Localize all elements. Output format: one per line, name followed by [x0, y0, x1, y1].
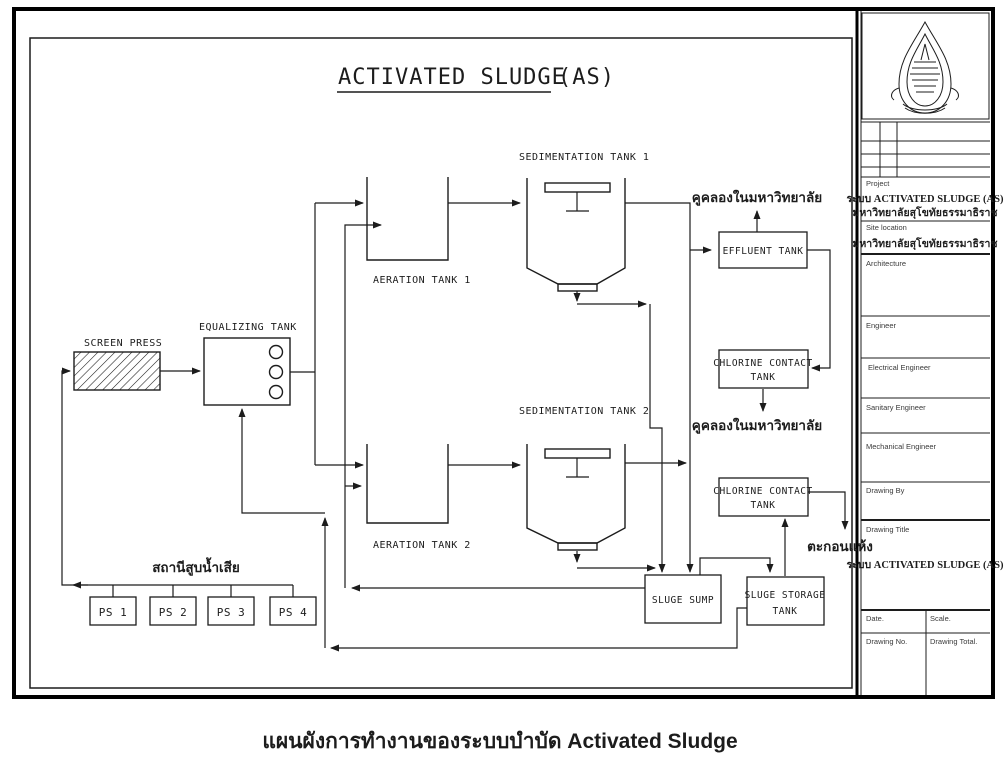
- diagram-title: ACTIVATED SLUDGE (AS): [337, 65, 615, 92]
- drawing-no-label: Drawing No.: [866, 637, 907, 646]
- drawing-by-label: Drawing By: [866, 486, 905, 495]
- pump-station-group-label: สถานีสูบน้ำเสีย: [152, 557, 240, 576]
- sheet-border: [14, 9, 993, 697]
- chlorine-contact-tank-1-label: CHLORINE CONTACT: [713, 358, 813, 369]
- process-flow-diagram: ACTIVATED SLUDGE (AS): [0, 0, 1006, 765]
- date-label: Date.: [866, 614, 884, 623]
- electrical-engineer-label: Electrical Engineer: [868, 363, 931, 372]
- page-caption: แผนผังการทำงานของระบบบำบัด Activated Slu…: [262, 730, 737, 753]
- canal-annotation-top: คูคลองในมหาวิทยาลัย: [692, 189, 822, 206]
- sedimentation-tank-1-label: SEDIMENTATION TANK 1: [519, 152, 649, 163]
- sludge-sump: SLUGE SUMP: [645, 575, 721, 623]
- sludge-storage-tank-body: [747, 577, 824, 625]
- drawing-title-value: ระบบ ACTIVATED SLUDGE (AS): [847, 560, 1004, 571]
- engineer-label: Engineer: [866, 321, 897, 330]
- sedimentation-tank-2-label: SEDIMENTATION TANK 2: [519, 406, 649, 417]
- architecture-label: Architecture: [866, 259, 906, 268]
- diagram-title-suffix: (AS): [558, 65, 615, 90]
- chlorine-contact-tank-2: CHLORINE CONTACT TANK: [713, 478, 813, 516]
- scale-label: Scale.: [930, 614, 951, 623]
- pump-station-4-label: PS 4: [279, 606, 308, 619]
- site-location-value: มหาวิทยาลัยสุโขทัยธรรมาธิราช: [852, 237, 997, 251]
- pump-station-1-label: PS 1: [99, 606, 128, 619]
- effluent-tank-label: EFFLUENT TANK: [723, 246, 804, 257]
- aeration-tank-1-label: AERATION TANK 1: [373, 275, 471, 286]
- equalizing-tank-label: EQUALIZING TANK: [199, 322, 297, 333]
- sludge-storage-tank-label2: TANK: [773, 606, 798, 617]
- sludge-storage-tank: SLUGE STORAGE TANK: [745, 577, 826, 625]
- chlorine-contact-tank-2-label: CHLORINE CONTACT: [713, 486, 813, 497]
- drawing-sheet: ACTIVATED SLUDGE (AS): [0, 0, 1006, 765]
- project-label: Project: [866, 179, 890, 188]
- aeration-tank-2-label: AERATION TANK 2: [373, 540, 471, 551]
- drawing-title-label: Drawing Title: [866, 525, 909, 534]
- pump-station-2-label: PS 2: [159, 606, 188, 619]
- chlorine-contact-tank-1-label2: TANK: [751, 372, 776, 383]
- sludge-storage-tank-label: SLUGE STORAGE: [745, 590, 826, 601]
- pump-station-3-label: PS 3: [217, 606, 246, 619]
- dried-sludge-annotation: ตะกอนแห้ง: [807, 539, 873, 554]
- sludge-sump-label: SLUGE SUMP: [652, 595, 714, 606]
- sanitary-engineer-label: Sanitary Engineer: [866, 403, 926, 412]
- mechanical-engineer-label: Mechanical Engineer: [866, 442, 937, 451]
- project-line1: ระบบ ACTIVATED SLUDGE (AS): [847, 194, 1004, 205]
- drawing-total-label: Drawing Total.: [930, 637, 977, 646]
- chlorine-contact-tank-1: CHLORINE CONTACT TANK: [713, 350, 813, 388]
- canal-annotation-bottom: คูคลองในมหาวิทยาลัย: [692, 417, 822, 434]
- screen-press-body: [74, 352, 160, 390]
- screen-press: SCREEN PRESS: [74, 338, 162, 390]
- effluent-tank: EFFLUENT TANK: [719, 232, 807, 268]
- project-line2: มหาวิทยาลัยสุโขทัยธรรมาธิราช: [852, 206, 997, 220]
- chlorine-contact-tank-2-label2: TANK: [751, 500, 776, 511]
- diagram-title-text: ACTIVATED SLUDGE: [338, 65, 566, 90]
- site-location-label: Site location: [866, 223, 907, 232]
- screen-press-label: SCREEN PRESS: [84, 338, 162, 349]
